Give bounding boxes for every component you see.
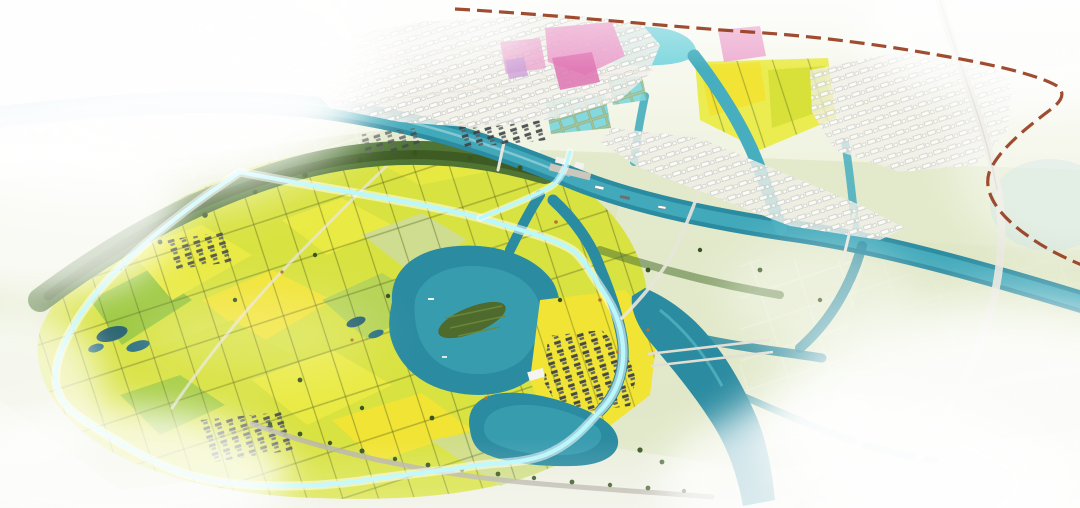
masterplan-rendering — [0, 0, 1080, 508]
rendering-canvas — [0, 0, 1080, 508]
